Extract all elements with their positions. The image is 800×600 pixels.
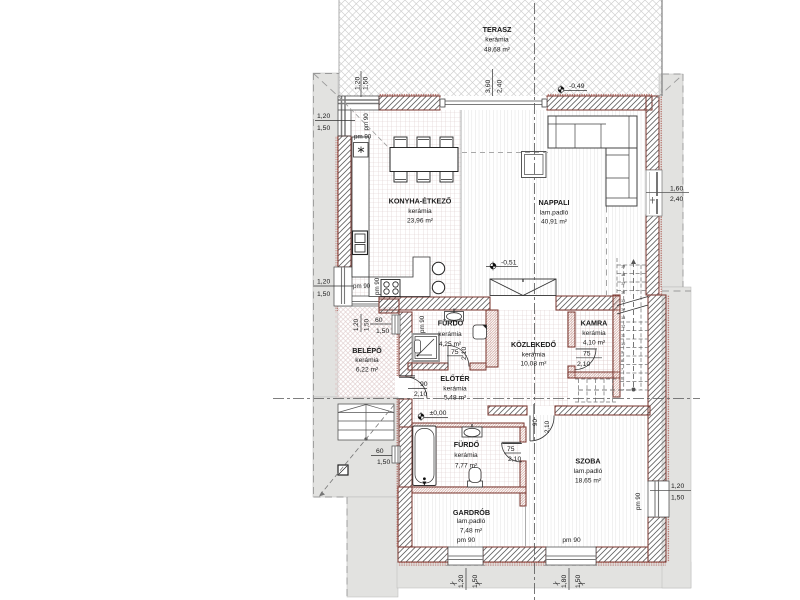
svg-text:2,10: 2,10 (577, 361, 590, 368)
svg-text:2,40: 2,40 (497, 80, 504, 93)
svg-text:kerámia: kerámia (408, 208, 432, 215)
svg-text:TERASZ: TERASZ (483, 25, 512, 34)
svg-text:18,65 m²: 18,65 m² (575, 478, 602, 485)
svg-text:kerámia: kerámia (522, 352, 546, 359)
svg-text:2,40: 2,40 (670, 196, 683, 203)
svg-text:1,50: 1,50 (376, 328, 389, 335)
svg-text:48,68 m²: 48,68 m² (484, 47, 511, 54)
svg-text:lam.padló: lam.padló (540, 210, 569, 217)
svg-text:16: 16 (621, 290, 625, 294)
svg-text:-0,49: -0,49 (569, 83, 585, 90)
svg-text:40,91 m²: 40,91 m² (541, 219, 568, 226)
svg-text:15: 15 (621, 299, 625, 303)
svg-text:6,22 m²: 6,22 m² (356, 367, 379, 374)
svg-text:kerámia: kerámia (355, 357, 379, 364)
svg-text:pm 90: pm 90 (374, 277, 381, 295)
svg-text:GARDRÓB: GARDRÓB (453, 508, 490, 517)
svg-text:pm 90: pm 90 (457, 537, 476, 544)
svg-text:90: 90 (420, 381, 428, 388)
svg-text:13: 13 (621, 316, 625, 320)
svg-text:17: 17 (621, 282, 625, 286)
svg-text:±0,00: ±0,00 (430, 410, 447, 417)
svg-text:pm 90: pm 90 (635, 492, 642, 510)
svg-text:23,96 m²: 23,96 m² (407, 218, 434, 225)
svg-text:kerámia: kerámia (582, 330, 606, 337)
svg-text:1,80: 1,80 (561, 575, 568, 588)
svg-text:4,10 m²: 4,10 m² (583, 340, 606, 347)
svg-text:1,20: 1,20 (671, 483, 684, 490)
svg-text:10: 10 (621, 342, 625, 346)
svg-text:1,50: 1,50 (377, 459, 390, 466)
svg-text:pm 90: pm 90 (363, 113, 370, 131)
svg-text:14: 14 (621, 308, 625, 312)
svg-text:1,50: 1,50 (472, 575, 479, 588)
svg-text:1,50: 1,50 (317, 125, 330, 132)
svg-text:7: 7 (621, 368, 623, 372)
svg-text:12: 12 (621, 325, 625, 329)
svg-text:BELÉPŐ: BELÉPŐ (352, 346, 382, 355)
svg-text:lam.padló: lam.padló (457, 518, 486, 525)
svg-text:1,50: 1,50 (671, 495, 684, 502)
svg-text:7,48 m²: 7,48 m² (460, 528, 483, 535)
svg-text:19: 19 (621, 265, 625, 269)
svg-text:11: 11 (621, 333, 625, 337)
svg-text:5,48 m²: 5,48 m² (444, 395, 467, 402)
svg-text:lam.padló: lam.padló (574, 468, 603, 475)
svg-text:pm 90: pm 90 (419, 315, 426, 333)
svg-text:60: 60 (376, 448, 384, 455)
svg-text:kerámia: kerámia (438, 331, 462, 338)
svg-text:1,50: 1,50 (317, 291, 330, 298)
svg-text:1,20: 1,20 (355, 77, 362, 90)
svg-text:kerámia: kerámia (443, 386, 467, 393)
svg-text:75: 75 (451, 349, 459, 356)
svg-text:1,20: 1,20 (353, 318, 360, 331)
svg-text:2,10: 2,10 (461, 347, 468, 360)
svg-text:1,20: 1,20 (317, 279, 330, 286)
svg-text:18: 18 (621, 273, 625, 277)
svg-text:4,25 m²: 4,25 m² (439, 341, 462, 348)
svg-text:ELŐTÉR: ELŐTÉR (440, 374, 470, 383)
svg-text:3,60: 3,60 (485, 80, 492, 93)
svg-text:KAMRA: KAMRA (581, 319, 608, 328)
svg-text:pm 90: pm 90 (353, 283, 371, 290)
svg-text:KONYHA-ÉTKEZŐ: KONYHA-ÉTKEZŐ (389, 197, 452, 206)
svg-text:6: 6 (621, 376, 623, 380)
svg-text:kerámia: kerámia (485, 37, 509, 44)
svg-text:75: 75 (507, 446, 515, 453)
svg-text:1,50: 1,50 (575, 575, 582, 588)
svg-text:1,60: 1,60 (670, 186, 683, 193)
svg-text:2,10: 2,10 (508, 456, 521, 463)
svg-text:2,10: 2,10 (544, 420, 551, 433)
svg-text:pm 90: pm 90 (562, 537, 581, 544)
svg-text:-0,51: -0,51 (501, 260, 517, 267)
svg-text:KÖZLEKEDŐ: KÖZLEKEDŐ (511, 340, 557, 349)
svg-text:1,20: 1,20 (458, 575, 465, 588)
svg-text:SZOBA: SZOBA (575, 457, 600, 466)
svg-text:8: 8 (621, 359, 623, 363)
svg-text:kerámia: kerámia (454, 452, 478, 459)
svg-text:1,50: 1,50 (364, 318, 371, 331)
svg-text:2,10: 2,10 (414, 391, 427, 398)
svg-text:9: 9 (621, 351, 623, 355)
svg-text:1,50: 1,50 (363, 77, 370, 90)
svg-text:FÜRDŐ: FÜRDŐ (438, 319, 464, 328)
svg-text:10,08 m²: 10,08 m² (520, 361, 547, 368)
svg-text:pm 90: pm 90 (354, 134, 372, 141)
svg-text:1,20: 1,20 (317, 113, 330, 120)
svg-text:60: 60 (375, 317, 383, 324)
svg-text:90: 90 (532, 419, 539, 426)
svg-text:7,77 m²: 7,77 m² (455, 463, 478, 470)
svg-text:NAPPALI: NAPPALI (538, 198, 569, 207)
svg-text:FÜRDŐ: FÜRDŐ (454, 440, 480, 449)
svg-text:75: 75 (583, 351, 591, 358)
